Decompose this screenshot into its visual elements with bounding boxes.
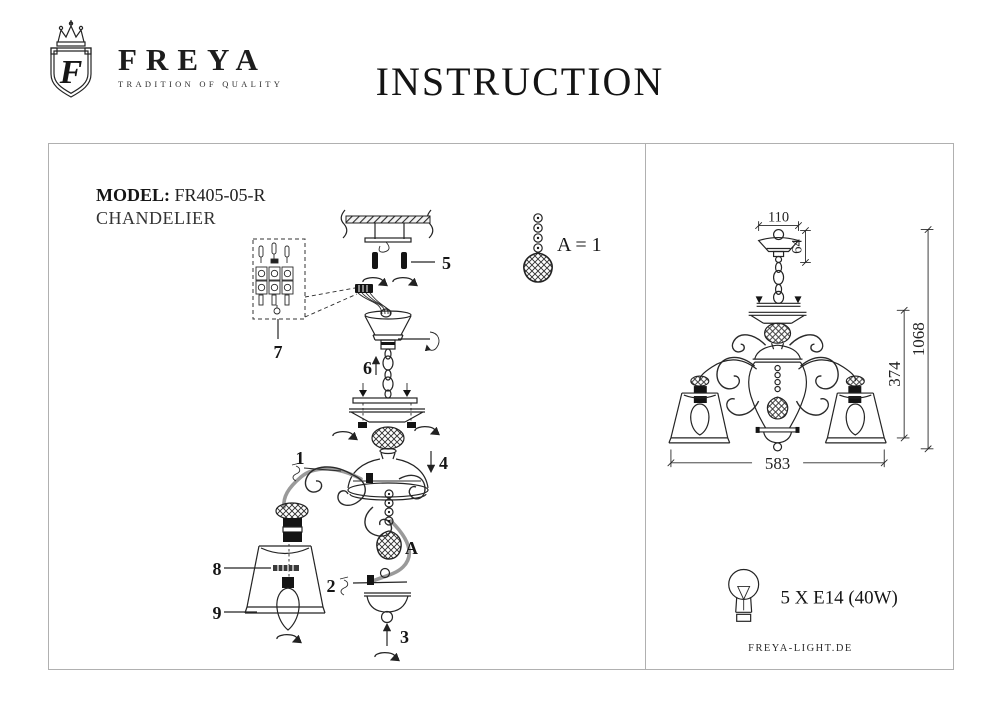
chain (376, 349, 393, 398)
mounting-strap (363, 223, 435, 285)
part-label-9: 9 (213, 603, 222, 623)
lampshade (224, 546, 325, 642)
part-label-4: 4 (439, 453, 448, 473)
brand-tagline: TRADITION OF QUALITY (118, 79, 283, 89)
canopy-assembly (355, 284, 439, 350)
part-label-3: 3 (400, 627, 409, 647)
dim-canopy-height: 64 (789, 239, 805, 253)
freya-crest-icon: F (40, 20, 102, 104)
website: FREYA-LIGHT.DE (748, 643, 853, 654)
dim-body (717, 335, 838, 451)
logo-text: FREYA TRADITION OF QUALITY (118, 44, 283, 104)
rotate-arrow-icon (415, 427, 435, 434)
crystal-sample (524, 214, 552, 282)
rotate-arrow-icon (277, 635, 297, 642)
rotate-arrow-icon (393, 278, 413, 285)
page-title: INSTRUCTION (340, 58, 700, 105)
terminal-block-inset (253, 239, 357, 339)
rotate-arrow-icon (375, 653, 395, 660)
dim-fixture-width: 583 (765, 454, 790, 473)
rotate-arrow-icon (363, 278, 383, 285)
dim-body-height: 374 (885, 361, 904, 387)
instruction-sheet: F FREYA TRADITION OF QUALITY INSTRUCTION… (0, 0, 1000, 706)
center-body (348, 427, 431, 500)
instruction-box: MODEL: FR405-05-R CHANDELIER (48, 143, 954, 670)
dim-total-height: 1068 (909, 322, 928, 356)
dimension-diagram: 110 64 374 1068 583 5 X E14 (40W) FREYA-… (646, 144, 953, 669)
dim-crossbar (749, 296, 807, 349)
assembly-diagram: 5 (49, 144, 645, 669)
brand-name: FREYA (118, 44, 283, 75)
crystal-note: A = 1 (557, 234, 602, 256)
part-label-2: 2 (327, 576, 336, 596)
part-label-8: 8 (213, 559, 222, 579)
part-label-5: 5 (442, 253, 451, 273)
part-label-7: 7 (274, 342, 283, 362)
crystal-label: A (405, 538, 418, 558)
light-bulb-icon (729, 569, 759, 621)
part-label-1: 1 (296, 448, 305, 468)
brand-logo: F FREYA TRADITION OF QUALITY (40, 20, 283, 104)
dim-canopy-width: 110 (768, 210, 789, 226)
dimension-lines (668, 222, 933, 467)
rotate-arrow-icon (333, 432, 353, 439)
logo-letter: F (59, 54, 83, 91)
ceiling (341, 210, 433, 238)
part-label-6: 6 (363, 358, 372, 378)
bulb-spec: 5 X E14 (40W) (781, 587, 898, 608)
